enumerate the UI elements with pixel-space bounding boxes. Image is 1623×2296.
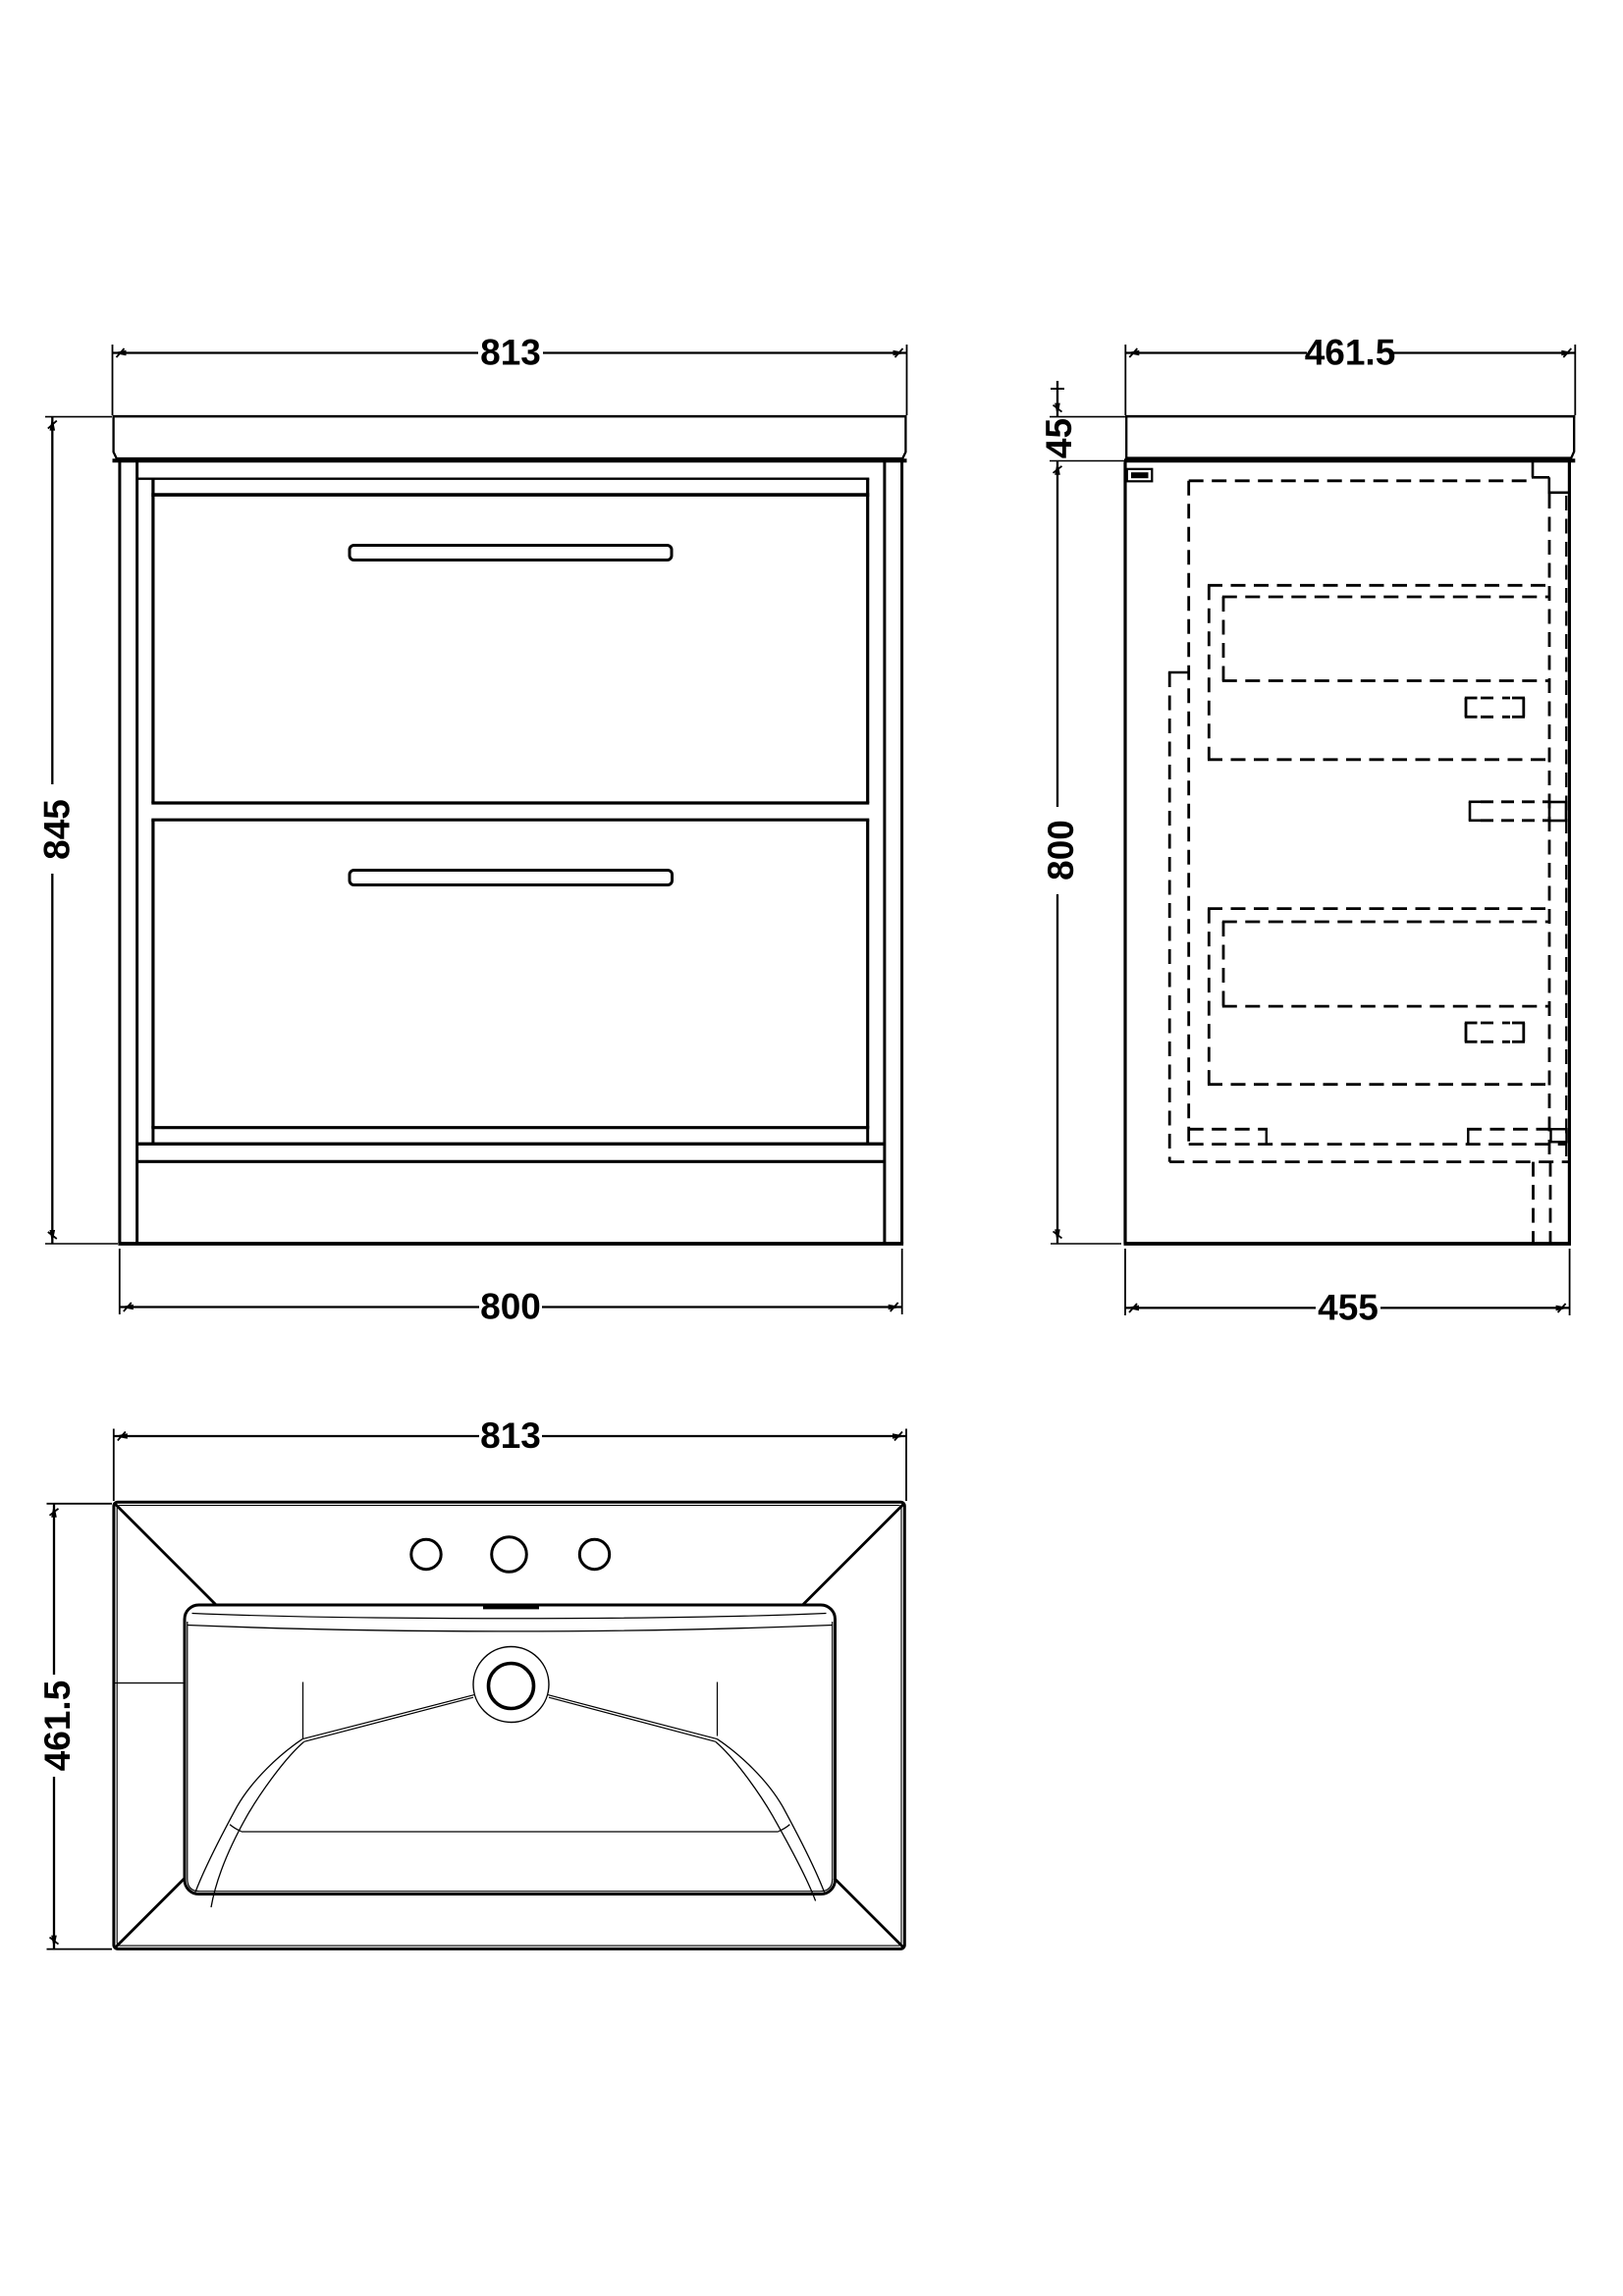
svg-text:45: 45 (1039, 418, 1079, 458)
svg-text:813: 813 (480, 1415, 541, 1456)
svg-text:845: 845 (36, 799, 77, 860)
svg-text:461.5: 461.5 (37, 1681, 78, 1772)
svg-text:461.5: 461.5 (1305, 333, 1396, 373)
svg-text:813: 813 (480, 333, 541, 373)
svg-text:800: 800 (480, 1287, 541, 1327)
svg-text:455: 455 (1318, 1287, 1379, 1327)
svg-text:800: 800 (1041, 820, 1081, 881)
